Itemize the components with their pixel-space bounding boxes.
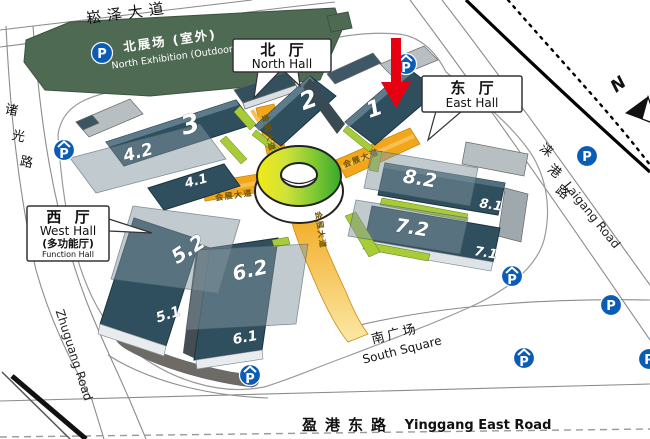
venue-map-page: 会展大道 会展大道 会展大道 会展大道 3 2 1 4.2 4.1 5.2 5.… (0, 0, 650, 439)
yinggang-road-label-en: Yinggang East Road (404, 418, 552, 433)
central-ring (255, 146, 343, 223)
svg-text:P: P (507, 273, 517, 288)
svg-text:P: P (606, 299, 616, 314)
west-hall-label-en: West Hall (40, 224, 96, 238)
west-hall-label-en2: Function Hall (42, 250, 94, 259)
hall-6-2-sheet (186, 244, 308, 330)
svg-text:P: P (59, 147, 69, 162)
parking-icon-southeast-corner: P (601, 295, 622, 316)
north-exhibition-field-east (327, 12, 352, 32)
svg-text:P: P (401, 61, 411, 76)
yinggang-road-label-cn: 盈港东路 (301, 416, 394, 434)
east-hall-label-cn: 东 厅 (450, 79, 497, 97)
north-hall-label-en: North Hall (252, 57, 312, 71)
east-hall-label-en: East Hall (446, 96, 499, 110)
svg-text:P: P (245, 372, 255, 387)
svg-text:P: P (97, 47, 107, 62)
svg-text:P: P (519, 355, 529, 370)
venue-map: 会展大道 会展大道 会展大道 会展大道 3 2 1 4.2 4.1 5.2 5.… (0, 0, 650, 439)
parking-icon-laigang: P (577, 146, 598, 167)
parking-icon-north-exhibition: P (92, 43, 113, 64)
svg-text:P: P (582, 150, 592, 165)
svg-text:P: P (644, 353, 650, 368)
west-hall-label-cn2: (多功能厅) (42, 237, 94, 250)
